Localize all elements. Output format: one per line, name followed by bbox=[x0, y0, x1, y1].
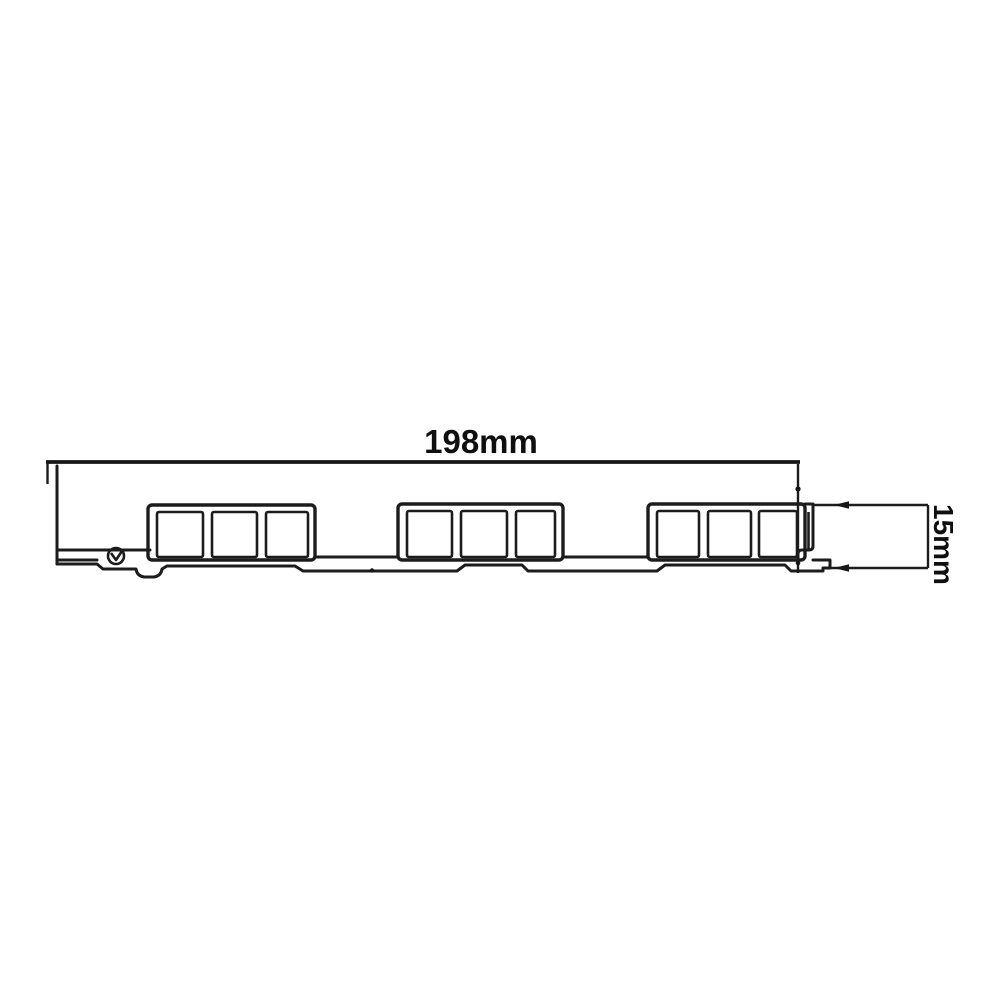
width-dimension-label: 198mm bbox=[424, 423, 538, 460]
hollow-chamber-group-3 bbox=[648, 504, 805, 560]
dimension-arrow-top bbox=[834, 501, 849, 509]
hollow-chamber-group-1 bbox=[148, 505, 315, 560]
dimension-arrow-bottom bbox=[834, 564, 849, 572]
height-dimension: 15mm bbox=[814, 501, 959, 585]
hollow-chamber-group-2 bbox=[398, 504, 563, 560]
board-profile bbox=[57, 466, 830, 577]
width-dimension: 198mm bbox=[46, 423, 801, 573]
cross-section-drawing: 198mm bbox=[0, 0, 1000, 1000]
left-flange bbox=[57, 550, 150, 560]
bottom-contour bbox=[57, 560, 830, 577]
technical-drawing-canvas: 198mm bbox=[0, 0, 1000, 1000]
height-dimension-label: 15mm bbox=[928, 504, 959, 585]
